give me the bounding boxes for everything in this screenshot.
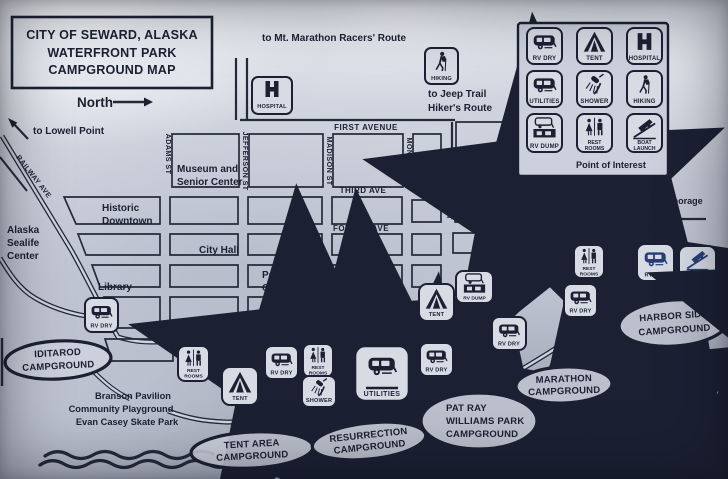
shore-road-west [0,258,86,316]
restrooms-icon-a: REST ROOMS [178,346,209,381]
marathon-label1: MARATHON [535,373,592,386]
shower-icon: SHOWER [302,376,336,407]
tent-icon-b: TENT [419,284,454,321]
title-line-3: CAMPGROUND MAP [48,63,175,77]
street-label-madison: MADISON ST [325,136,334,185]
rv-dump-icon: RV DUMP [456,271,493,303]
legend-tent-label: TENT [586,56,603,62]
label-historic-1: Historic [102,203,140,214]
label-library: Library [98,282,132,293]
restrooms-c-label1: REST [582,266,595,272]
legend-poi-label: Point of Interest [576,160,646,170]
rv-dry-icon-west: RV DRY [85,298,118,332]
patray-label3: CAMPGROUND [446,429,518,440]
restrooms-c-label2: ROOMS [580,271,599,277]
rv-dry-d-label: RV DRY [498,342,520,348]
label-sealife-3: Center [7,251,39,262]
tent-icon-a: TENT [222,367,258,405]
utilities-icon: UTILITIES [355,346,409,401]
shower-label: SHOWER [306,398,332,404]
legend-item-utilities: UTILITIES [527,71,562,107]
legend-rv-dump-label: RV DUMP [530,144,559,150]
tent-a-label: TENT [232,396,248,402]
rv-dump-label: RV DUMP [463,296,486,302]
label-branson-1: Branson Pavilion [95,391,171,401]
hospital-icon: HOSPITAL [252,77,292,114]
label-playground: Playground [500,236,555,247]
legend-item-hospital: HOSPITAL [627,28,662,64]
title-line-1: CITY OF SEWARD, ALASKA [26,28,198,42]
legend-item-restrooms: REST ROOMS [577,114,612,152]
rv-dry-icon-d: RV DRY [492,317,526,350]
map-canvas: RAILWAY AVE FIRST AVENUE THIRD AVE SEWAR… [0,0,728,479]
hospital-icon-label: HOSPITAL [257,104,287,110]
rv-dry-west-label: RV DRY [90,324,112,330]
legend-utilities-label: UTILITIES [529,99,559,105]
rv-dry-icon-c: RV DRY [420,343,453,376]
label-mt-marathon-route: to Mt. Marathon Racers' Route [262,33,406,44]
street-label-adams: ADAMS ST [164,134,173,175]
tent-b-label: TENT [429,312,445,318]
label-sealife-2: Sealife [7,238,40,249]
label-boat-harbor: to Boat Harbor [607,223,670,233]
label-anchorage-2: to Anchorage [645,196,703,206]
restrooms-icon-b: REST ROOMS [303,344,333,377]
patray-label1: PAT RAY [446,403,487,414]
legend-item-rv-dry: RV DRY [527,28,562,64]
title-line-2: WATERFRONT PARK [47,46,176,60]
label-jeep-trail-2: Hiker's Route [428,103,493,114]
rv-dry-icon-e: RV DRY [564,284,597,317]
hiking-icon: HIKING [425,48,458,84]
legend-hiking-label: HIKING [633,99,655,105]
label-north: North [77,95,113,110]
patray-campground: PAT RAY WILLIAMS PARK CAMPGROUND [421,393,537,449]
rv-dry-b-label: RV DRY [270,371,292,377]
legend-item-shower: SHOWER [577,71,612,107]
label-museum-2: Senior Center [177,177,243,188]
restrooms-a-label2: ROOMS [184,374,203,380]
label-museum-1: Museum and [177,164,238,175]
restrooms-icon-c: REST ROOMS [574,245,604,278]
rv-dry-icon-b: RV DRY [265,346,298,379]
label-jeep-trail-1: to Jeep Trail [428,89,487,100]
label-city-hall: City Hall [199,245,239,256]
label-branson-2: Community Playground [69,404,174,414]
legend-item-hiking: HIKING [627,71,662,107]
legend-hospital-label: HOSPITAL [629,56,661,62]
utilities-label: UTILITIES [364,391,401,398]
legend-rv-dry-label: RV DRY [533,56,557,62]
label-branson-3: Evan Casey Skate Park [76,417,179,427]
restrooms-a-label1: REST [187,368,200,374]
legend-item-rv-dump: RV DUMP [527,114,562,152]
legend-restrooms-label2: ROOMS [585,146,605,152]
rv-dry-c-label: RV DRY [425,368,447,374]
label-sealife-1: Alaska [7,225,40,236]
street-label-third: THIRD AVE [340,186,387,195]
rv-dry-e-label: RV DRY [569,309,591,315]
hiking-icon-label: HIKING [431,76,452,82]
label-post-2: Office [262,283,291,294]
shore-road-west-core [0,258,86,316]
title-box: CITY OF SEWARD, ALASKA WATERFRONT PARK C… [12,17,212,88]
legend-item-tent: TENT [577,28,612,64]
north-arrow-head [144,98,153,107]
wave-left-1 [45,451,213,458]
patray-label2: WILLIAMS PARK [446,416,524,427]
legend-shower-label: SHOWER [580,99,609,105]
street-label-first: FIRST AVENUE [334,123,398,132]
legend-boat-launch-label2: LAUNCH [634,146,656,152]
label-anchorage-1: North [645,183,669,193]
label-post-1: Post [262,270,284,281]
label-historic-2: Downtown [102,216,153,227]
label-lowell-point: to Lowell Point [33,126,105,137]
legend-item-boat-launch: BOAT LAUNCH [627,114,662,152]
restrooms-b-label1: REST [311,365,324,371]
campground-map-photo: RAILWAY AVE FIRST AVENUE THIRD AVE SEWAR… [0,0,728,479]
